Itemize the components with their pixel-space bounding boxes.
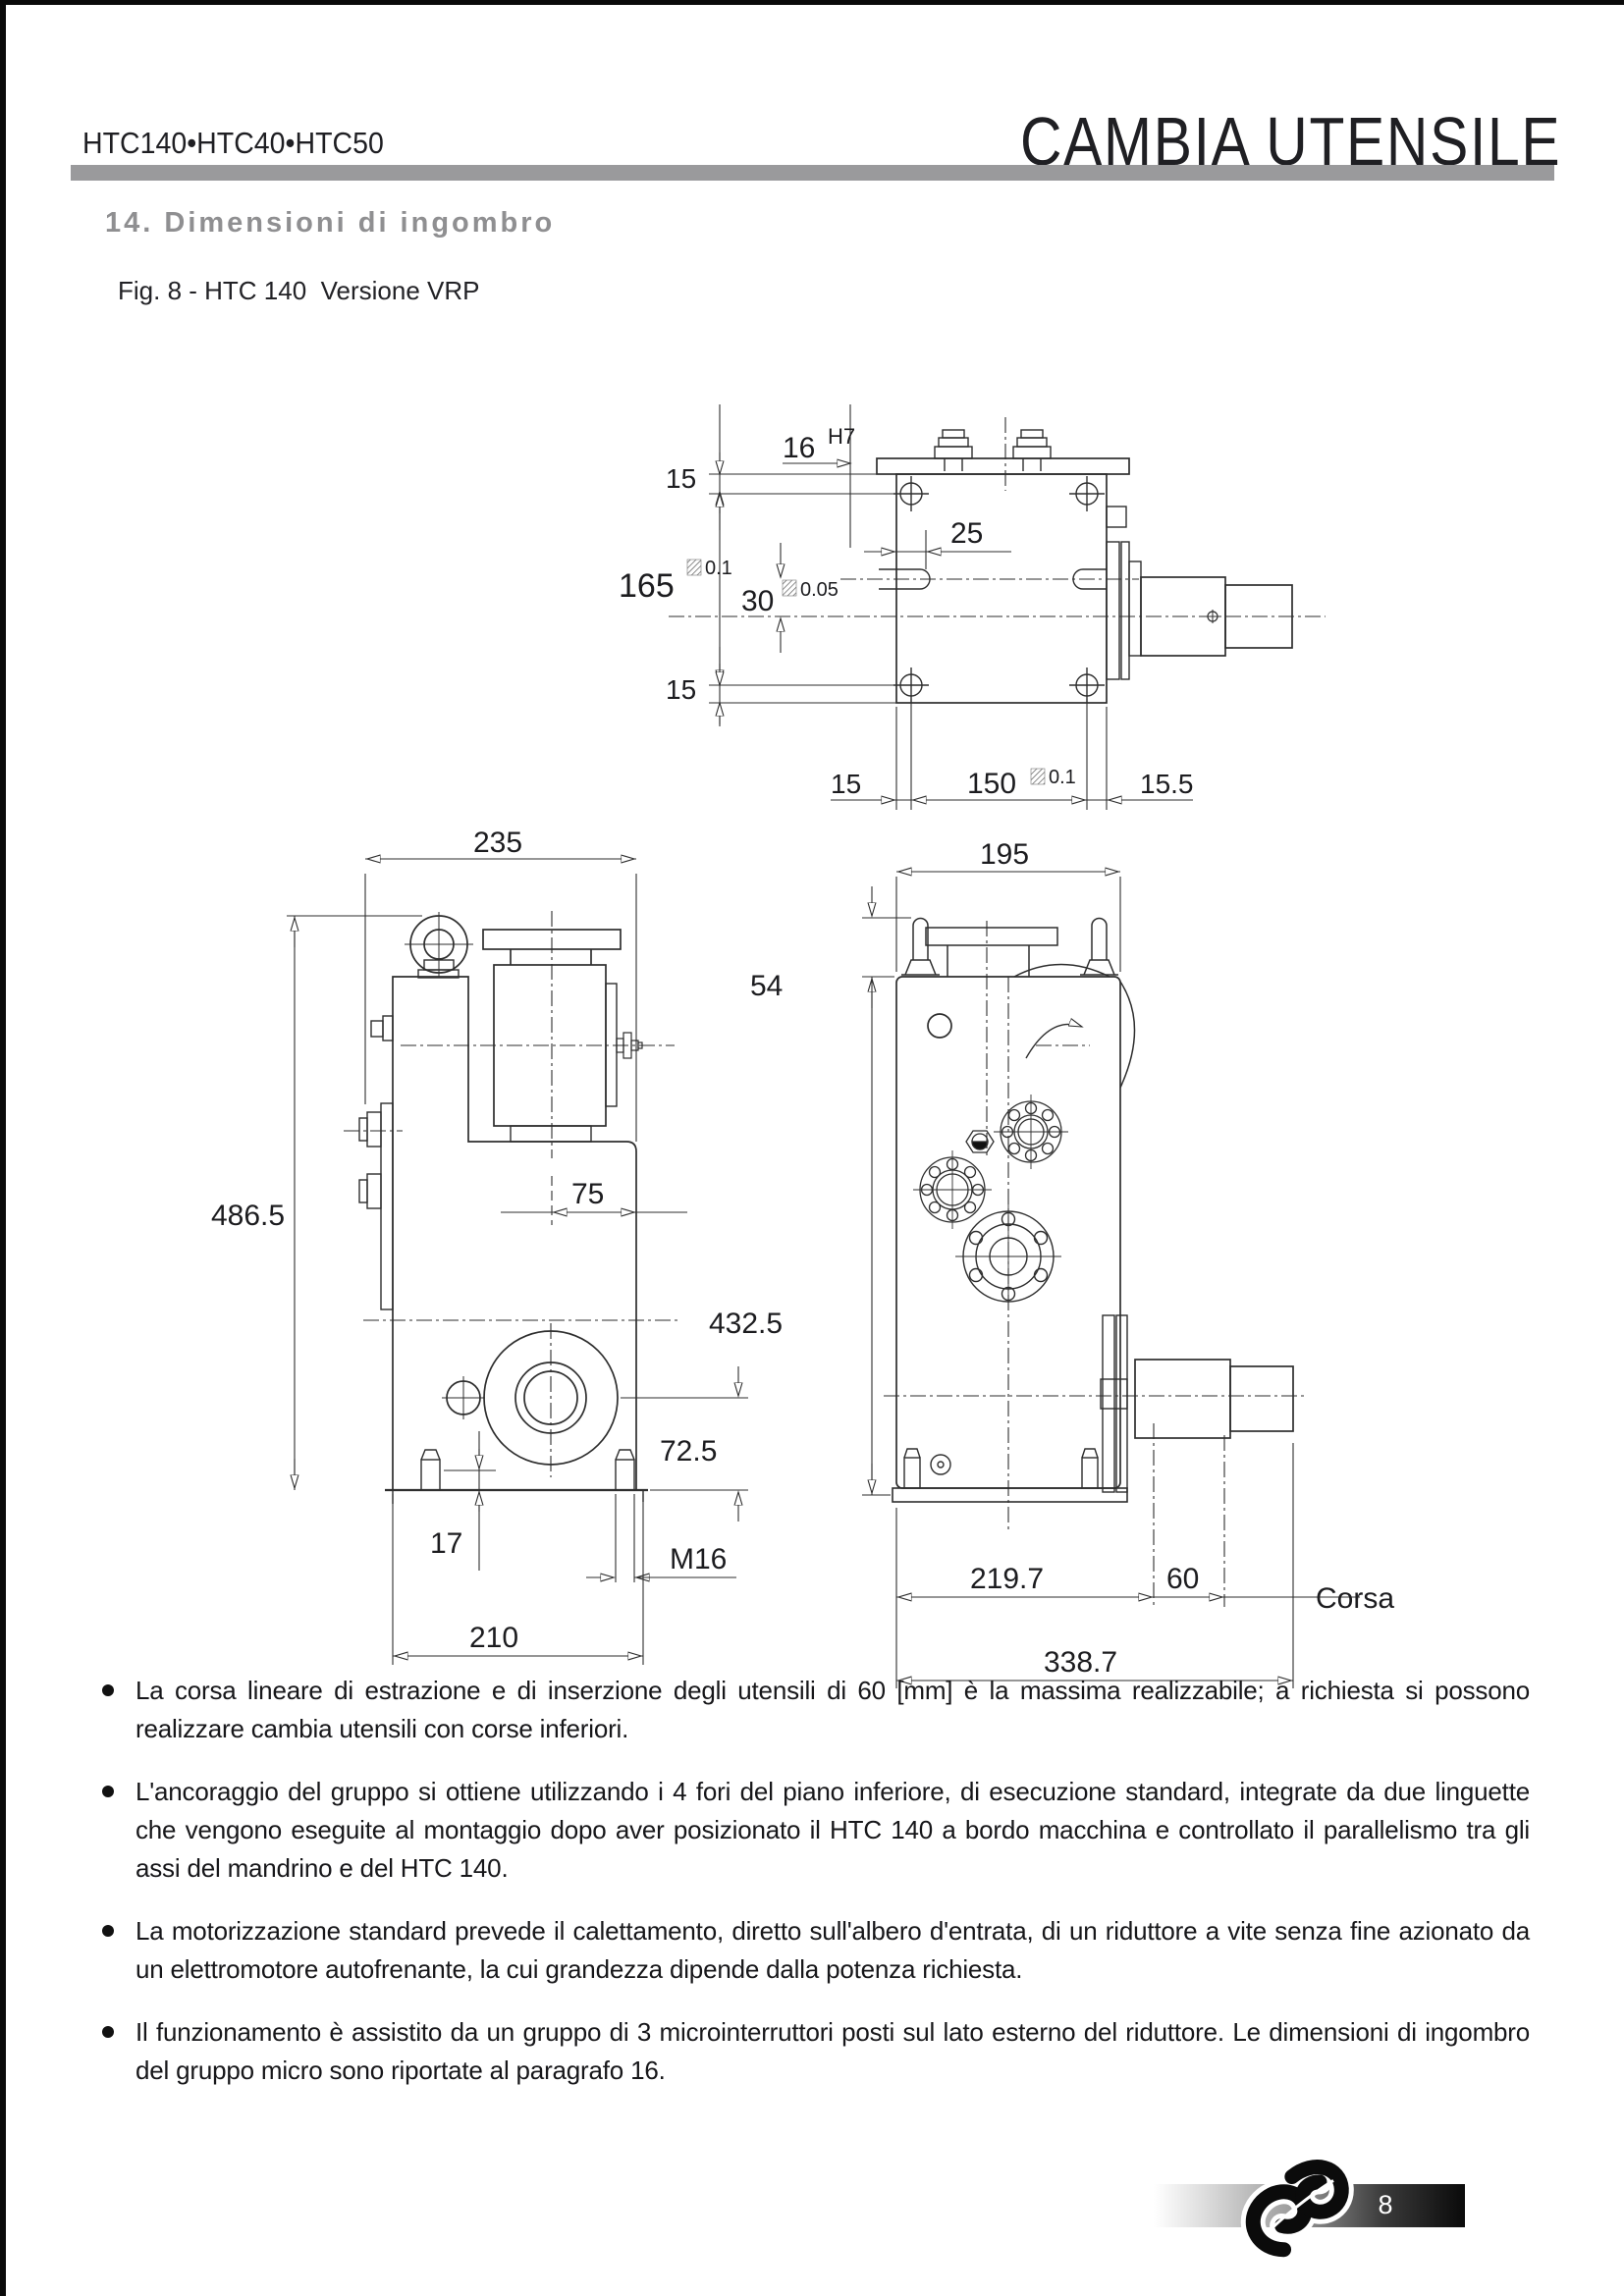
output-shaft [1101, 1315, 1293, 1492]
note-text: La motorizzazione standard prevede il ca… [135, 1916, 1530, 1984]
dim-label-432-5: 432.5 [709, 1308, 783, 1340]
note-text: La corsa lineare di estrazione e di inse… [135, 1676, 1530, 1743]
side-view-dimensions [862, 872, 1360, 1688]
dim-label-235: 235 [473, 827, 522, 859]
dim-label-486-5: 486.5 [211, 1200, 285, 1232]
header-divider-bar [71, 165, 1554, 181]
note-text: L'ancoraggio del gruppo si ottiene utili… [135, 1777, 1530, 1883]
list-item: La motorizzazione standard prevede il ca… [98, 1912, 1530, 1989]
dim-label-30: 30 [741, 585, 774, 617]
dim-label-75: 75 [571, 1178, 604, 1210]
side-plugs [359, 1016, 393, 1309]
header-models: HTC140•HTC40•HTC50 [82, 126, 384, 161]
list-item: La corsa lineare di estrazione e di inse… [98, 1672, 1530, 1748]
dim-label-corsa: Corsa [1316, 1582, 1394, 1615]
rotation-arrow-icon [1026, 1024, 1082, 1058]
dim-tol-30: 0.05 [800, 579, 839, 601]
centerlines [344, 911, 677, 1477]
bullet-dot-icon [102, 1684, 114, 1696]
dim-label-16-fit: H7 [828, 424, 855, 449]
list-item: Il funzionamento è assistito da un grupp… [98, 2013, 1530, 2090]
hex-plug [966, 1131, 994, 1152]
dim-label-15-bottom: 15 [666, 674, 696, 705]
flange-2 [913, 1150, 992, 1229]
dim-label-15-top: 15 [666, 463, 696, 494]
dim-tol-150: 0.1 [1049, 767, 1076, 788]
dim-label-M16: M16 [670, 1543, 727, 1575]
eyebolt [405, 912, 473, 978]
front-boss [442, 1331, 618, 1465]
dim-label-25: 25 [950, 517, 983, 550]
motor [483, 930, 642, 1142]
scan-edge-top [0, 0, 1624, 5]
notes-list: La corsa lineare di estrazione e di inse… [98, 1672, 1530, 2114]
top-view-dimensions [709, 404, 1193, 810]
manual-page: HTC140•HTC40•HTC50 CAMBIA UTENSILE 14. D… [0, 0, 1624, 2296]
bullet-dot-icon [102, 1786, 114, 1797]
flange-1 [994, 1095, 1068, 1169]
dim-label-b15: 15 [831, 769, 861, 799]
dim-label-17: 17 [430, 1527, 462, 1560]
dim-label-54: 54 [750, 970, 783, 1002]
mounting-holes [893, 476, 1105, 703]
dim-label-219-7: 219.7 [970, 1563, 1044, 1595]
side-studs [904, 1449, 1098, 1488]
tolerance-hatch-icon [687, 560, 701, 575]
tolerance-hatch-icon [783, 580, 796, 596]
bullet-dot-icon [102, 1925, 114, 1937]
bullet-dot-icon [102, 2026, 114, 2038]
dim-label-15-5: 15.5 [1140, 769, 1194, 799]
fitting-connector [935, 430, 1051, 471]
dim-label-165: 165 [619, 567, 675, 605]
dim-label-16: 16 [783, 432, 815, 464]
dim-label-60: 60 [1166, 1563, 1199, 1595]
figure-caption: Fig. 8 - HTC 140 Versione VRP [118, 276, 479, 306]
dim-label-210: 210 [469, 1622, 518, 1654]
centerlines [884, 921, 1306, 1607]
lifting-pins [901, 919, 1118, 978]
dim-label-72-5: 72.5 [660, 1435, 717, 1468]
housing-bulge [1120, 982, 1135, 1088]
dim-label-195: 195 [980, 838, 1029, 871]
tolerance-hatch-icon [1031, 769, 1045, 784]
page-number: 8 [1363, 2190, 1408, 2220]
side-view: 195 54 432.5 219.7 60 Corsa 338.7 [709, 838, 1394, 1688]
brand-logo-icon [1235, 2154, 1369, 2264]
face-hole [928, 1014, 951, 1038]
note-text: Il funzionamento è assistito da un grupp… [135, 2017, 1530, 2085]
scan-edge-left [0, 0, 6, 2296]
technical-drawing: 16 H7 15 165 0.1 30 0.05 25 15 15 150 0.… [187, 373, 1434, 1708]
dim-label-150: 150 [967, 768, 1016, 800]
list-item: L'ancoraggio del gruppo si ottiene utili… [98, 1773, 1530, 1888]
front-view: 235 486.5 75 72.5 17 M16 210 [211, 827, 748, 1665]
section-title: 14. Dimensioni di ingombro [105, 207, 555, 240]
dim-tol-165: 0.1 [705, 558, 732, 579]
top-view: 16 H7 15 165 0.1 30 0.05 25 15 15 150 0.… [619, 404, 1326, 810]
